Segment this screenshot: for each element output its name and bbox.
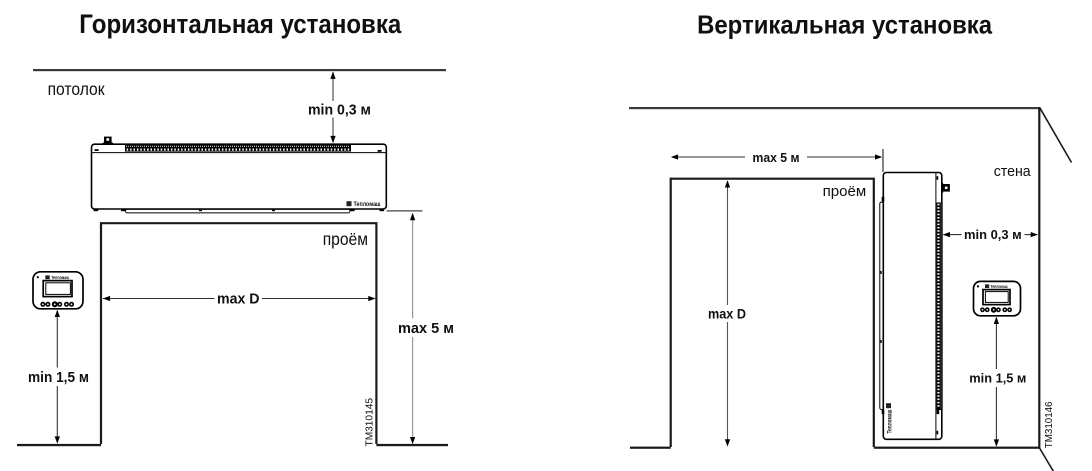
svg-text:TM310145: TM310145 [364,398,376,447]
svg-text:min 1,5 м: min 1,5 м [969,370,1026,385]
svg-text:max 5 м: max 5 м [753,150,800,165]
svg-text:min 1,5 м: min 1,5 м [28,370,89,386]
svg-text:TM310146: TM310146 [1043,401,1055,448]
svg-text:стена: стена [994,164,1032,180]
svg-text:max D: max D [708,306,746,321]
svg-text:max 5 м: max 5 м [398,320,454,337]
svg-text:потолок: потолок [48,79,105,99]
svg-text:проём: проём [323,229,368,249]
svg-text:Тепломаш: Тепломаш [888,410,894,434]
svg-text:Тепломаш: Тепломаш [991,284,1008,289]
svg-text:Тепломаш: Тепломаш [51,275,69,280]
svg-text:Вертикальная установка: Вертикальная установка [697,12,993,40]
svg-text:min 0,3 м: min 0,3 м [308,103,371,119]
svg-text:min 0,3 м: min 0,3 м [964,227,1022,242]
svg-text:Тепломаш: Тепломаш [354,202,381,208]
svg-text:Горизонтальная установка: Горизонтальная установка [79,9,402,39]
svg-text:проём: проём [823,184,867,200]
svg-text:max D: max D [217,290,260,307]
